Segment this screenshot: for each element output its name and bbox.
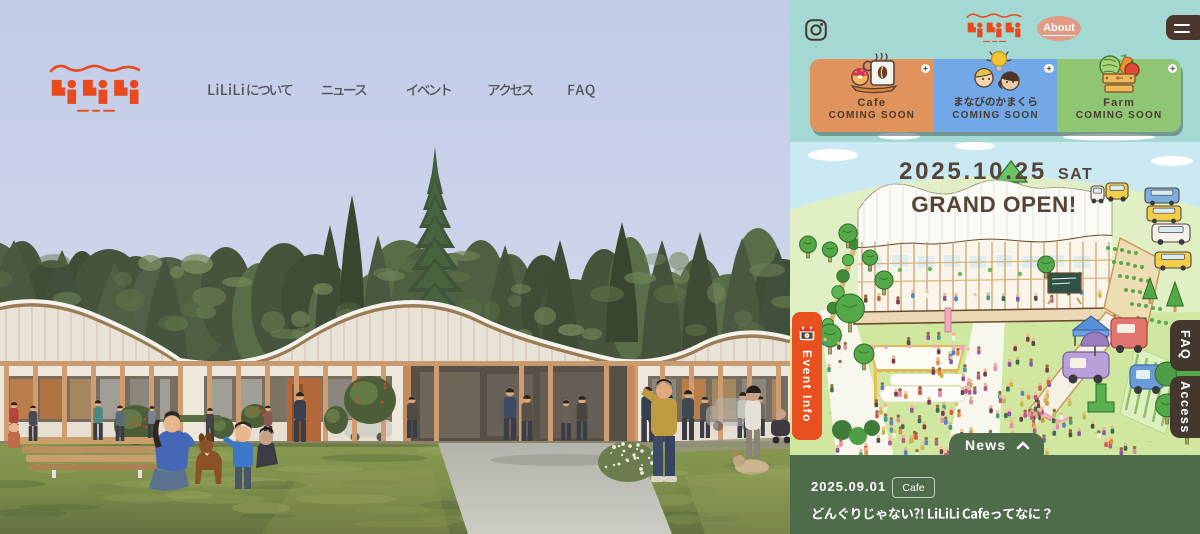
svg-text:2025.10.25: 2025.10.25 <box>899 158 1047 185</box>
svg-text:GRAND OPEN!: GRAND OPEN! <box>911 192 1077 217</box>
svg-text:SAT: SAT <box>1058 166 1093 183</box>
